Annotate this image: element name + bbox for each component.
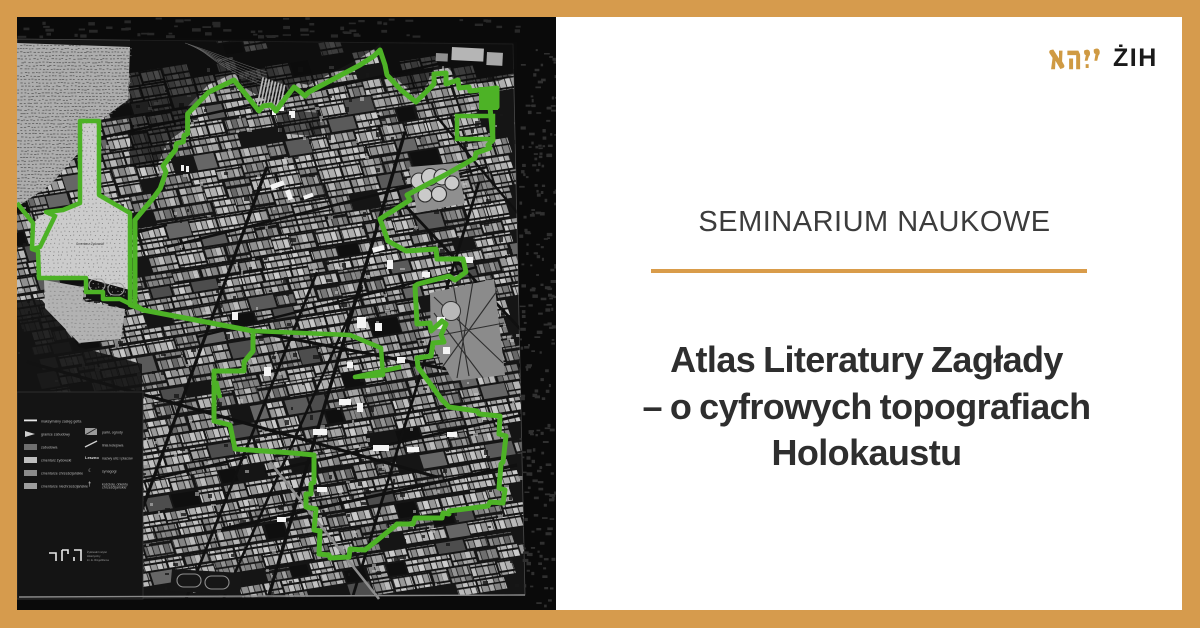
svg-text:parki, ogrody: parki, ogrody [102, 431, 123, 435]
svg-text:chrześcijańskie: chrześcijańskie [102, 486, 126, 490]
svg-text:Cmentarz Żydowski: Cmentarz Żydowski [76, 241, 104, 246]
svg-text:nazwy ulic i placów: nazwy ulic i placów [102, 457, 133, 461]
svg-text:zabudowa: zabudowa [41, 446, 57, 450]
svg-text:granice zabudowy: granice zabudowy [41, 433, 70, 437]
svg-text:cmentarz żydowski: cmentarz żydowski [41, 459, 72, 463]
svg-text:†: † [88, 482, 91, 488]
svg-text:cmentarze niechrześcijańskie: cmentarze niechrześcijańskie [41, 485, 88, 489]
svg-text:Leszno: Leszno [85, 455, 99, 460]
svg-text:Historyczny: Historyczny [87, 554, 101, 558]
svg-text:cmentarze chrześcijańskie: cmentarze chrześcijańskie [41, 472, 83, 476]
svg-text:synagogi: synagogi [102, 470, 117, 474]
svg-text:linia kolejowa: linia kolejowa [102, 444, 123, 448]
svg-text:maksymalny zasięg getta: maksymalny zasięg getta [41, 420, 81, 424]
svg-text:☾: ☾ [88, 468, 92, 474]
svg-text:im. E. Ringelbluma: im. E. Ringelbluma [87, 558, 109, 562]
